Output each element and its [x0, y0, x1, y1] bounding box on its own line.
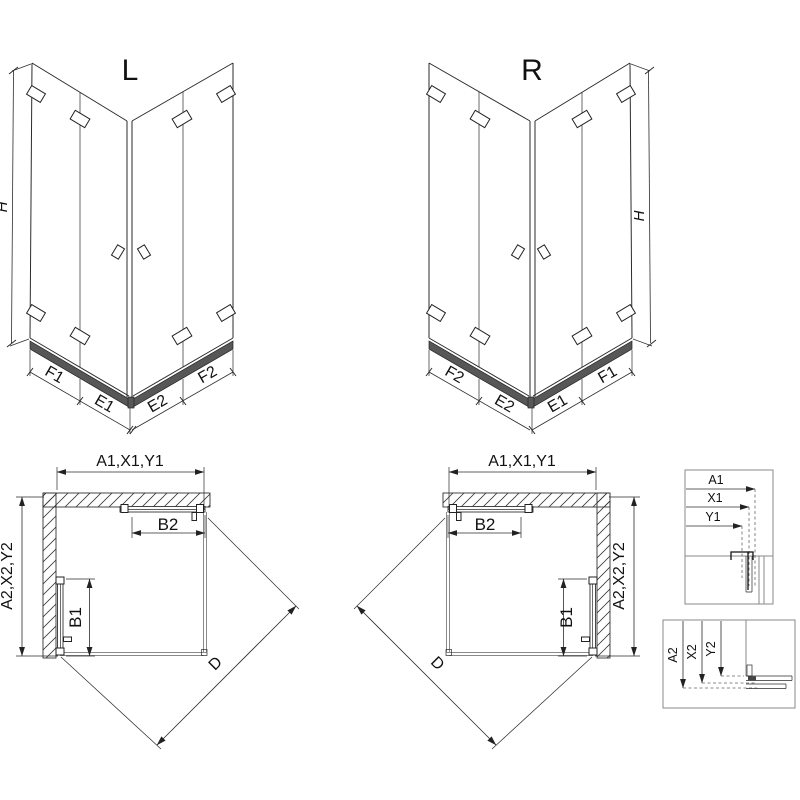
d-dimension-line — [357, 606, 496, 745]
hinge-icon — [197, 505, 204, 513]
hinge-icon — [172, 327, 192, 344]
door-handle-icon — [457, 513, 462, 521]
detail-box-bottom: A2 X2 Y2 — [663, 620, 795, 708]
hinge-icon — [589, 648, 597, 655]
door-handle-icon — [582, 637, 590, 642]
depth-dim-label: A2,X2,Y2 — [611, 542, 628, 610]
detail-a2-label: A2 — [666, 647, 680, 662]
h-dimension-line — [12, 70, 14, 343]
door-fold-depth-label: B1 — [557, 607, 576, 628]
door-handle-icon — [511, 245, 524, 259]
hinge-icon — [56, 648, 64, 655]
hinge-icon — [470, 327, 490, 344]
technical-drawing-page: L H F1 E1 E2 F2 R — [0, 0, 800, 800]
width-dim-label: A1,X1,Y1 — [488, 453, 556, 470]
detail-box-top: A1 X1 Y1 — [685, 470, 773, 604]
detail-reference-dashes — [683, 676, 757, 688]
door-handle-icon — [537, 245, 550, 259]
detail-y1-label: Y1 — [705, 510, 720, 524]
door-handle-icon — [64, 637, 72, 642]
door-handle-icon — [111, 245, 124, 259]
height-dim-label: H — [0, 201, 11, 212]
fixed-glass-lines — [447, 512, 594, 656]
fixed-glass-lines — [60, 512, 207, 656]
hinge-icon — [470, 110, 490, 127]
detail-a1-label: A1 — [708, 473, 723, 487]
tray-corner — [528, 397, 534, 408]
detail-box-frame — [685, 470, 773, 604]
profile-clamp — [748, 677, 756, 681]
wall-bracket-icon — [617, 86, 636, 103]
perspective-view-left: L H F1 E1 E2 F2 — [0, 54, 236, 434]
plan-view-left: A1,X1,Y1 A2,X2,Y2 B2 B1 D — [0, 453, 299, 749]
height-dim-label: H — [631, 210, 648, 221]
wall-hatch-right — [597, 493, 610, 658]
detail-x2-label: X2 — [685, 644, 699, 659]
h-dimension-line — [649, 70, 651, 343]
d-extension-lines — [354, 518, 592, 749]
width-dim-label: A1,X1,Y1 — [96, 453, 164, 470]
entry-diagonal-label: D — [427, 654, 447, 674]
perspective-view-right: R H F2 E2 E1 F1 — [426, 54, 656, 434]
shower-enclosure-technical-drawing: L H F1 E1 E2 F2 R — [0, 0, 800, 800]
door-handle-icon — [137, 245, 150, 259]
entry-diagonal-label: D — [206, 654, 226, 674]
d-extension-lines — [61, 518, 299, 749]
hinge-icon — [172, 110, 192, 127]
hinge-icon — [572, 110, 592, 127]
hinge-icon — [450, 505, 457, 513]
glass-wall-outline-right — [429, 63, 632, 397]
hinge-icon — [525, 505, 532, 513]
door-handle-icon — [192, 513, 197, 521]
detail-x1-label: X1 — [707, 491, 722, 505]
hinge-icon — [70, 327, 90, 344]
door-fold-depth-label: B1 — [66, 607, 85, 628]
depth-dim-label: A2,X2,Y2 — [0, 542, 16, 610]
hinge-icon — [572, 327, 592, 344]
door-fold-width-label: B2 — [475, 515, 496, 534]
tray-corner — [128, 397, 134, 408]
hinge-icon — [56, 577, 64, 584]
profile-stub — [747, 665, 752, 676]
variant-label-left: L — [122, 54, 139, 87]
wall-bracket-icon — [617, 305, 636, 322]
hinge-icon — [589, 577, 597, 584]
profile-lines — [759, 556, 764, 604]
glass-wall-outline-left — [30, 63, 233, 397]
hinge-icon — [121, 505, 128, 513]
wall-hatch-left — [43, 493, 56, 658]
detail-y2-label: Y2 — [704, 641, 718, 656]
plan-view-right: A1,X1,Y1 A2,X2,Y2 B2 B1 D — [354, 453, 640, 749]
wall-bracket-icon — [27, 86, 46, 103]
hinge-icon — [70, 110, 90, 127]
d-dimension-line — [157, 606, 296, 745]
wall-bracket-icon — [27, 305, 46, 322]
door-fold-width-label: B2 — [158, 515, 179, 534]
variant-label-right: R — [521, 54, 543, 87]
